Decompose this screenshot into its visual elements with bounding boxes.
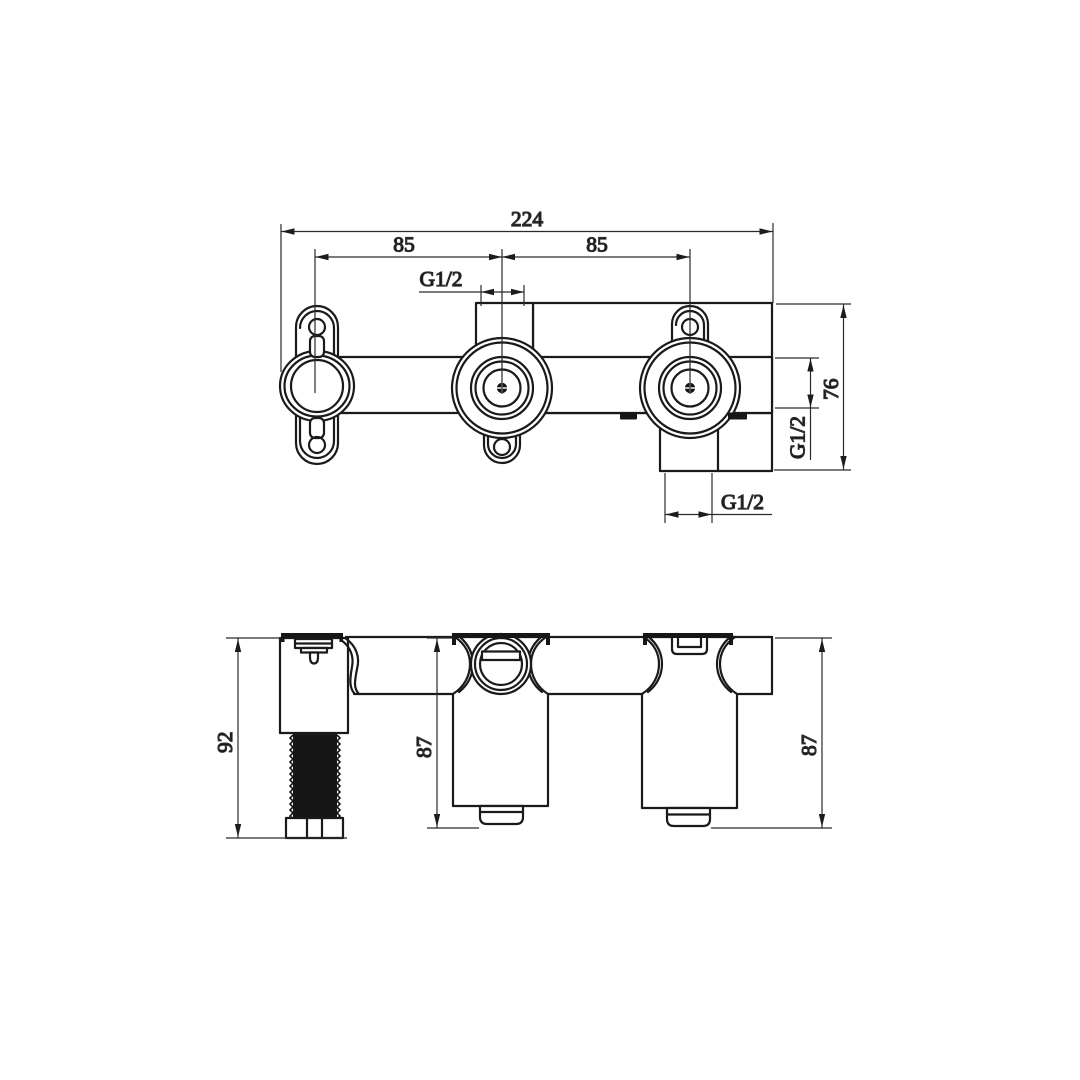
dim-center-port-label: G1/2 (420, 267, 463, 291)
bar-clip-left (620, 413, 637, 420)
middle-ring-slot (482, 652, 520, 661)
thread-serration-left (290, 735, 293, 819)
dim-side-port: G1/2 (775, 358, 819, 460)
dim-left-height-label: 92 (213, 732, 237, 754)
middle-bottom-cap (480, 806, 523, 824)
dim-spacing-left-label: 85 (393, 233, 415, 257)
dim-side-port-label: G1/2 (786, 416, 810, 459)
top-view: 224 85 85 G1/2 (280, 207, 851, 523)
left-valve (280, 319, 354, 453)
right-union (642, 633, 737, 826)
threaded-stud (293, 734, 337, 818)
plate-hook (546, 633, 550, 645)
left-union (280, 633, 359, 838)
plate-hook (643, 633, 647, 645)
left-wall-plate (281, 633, 343, 638)
left-valve-bottom-key (310, 418, 324, 438)
plate-hook (452, 633, 456, 645)
dim-bottom-port-label: G1/2 (721, 490, 764, 514)
middle-union (452, 633, 550, 824)
dim-center-port: G1/2 (419, 267, 524, 306)
left-valve-bore (291, 360, 343, 412)
hex-nut (286, 818, 343, 838)
dim-spacing-right-label: 85 (586, 233, 608, 257)
right-bottom-cap (667, 808, 710, 826)
rough-in-valve-drawing: 224 85 85 G1/2 (0, 0, 1080, 1080)
dim-middle-height-label: 87 (412, 736, 436, 758)
left-cap-pin (310, 653, 318, 664)
thread-serration-right (337, 735, 340, 819)
left-valve-top-key (310, 336, 324, 357)
middle-wall-plate (452, 633, 550, 638)
technical-drawing-page: 224 85 85 G1/2 (0, 0, 1080, 1080)
front-view: 92 87 87 (213, 633, 832, 838)
dim-bottom-port: G1/2 (665, 473, 772, 523)
bar-clip-right (728, 413, 747, 420)
dim-right-height-label: 87 (797, 734, 821, 756)
plate-tick (281, 633, 285, 642)
right-union-body (642, 637, 737, 808)
right-wall-plate (643, 633, 733, 638)
dim-overall-width-label: 224 (511, 207, 544, 231)
plate-tick (340, 633, 344, 642)
plate-hook (729, 633, 733, 645)
dim-depth-label: 76 (819, 378, 843, 400)
